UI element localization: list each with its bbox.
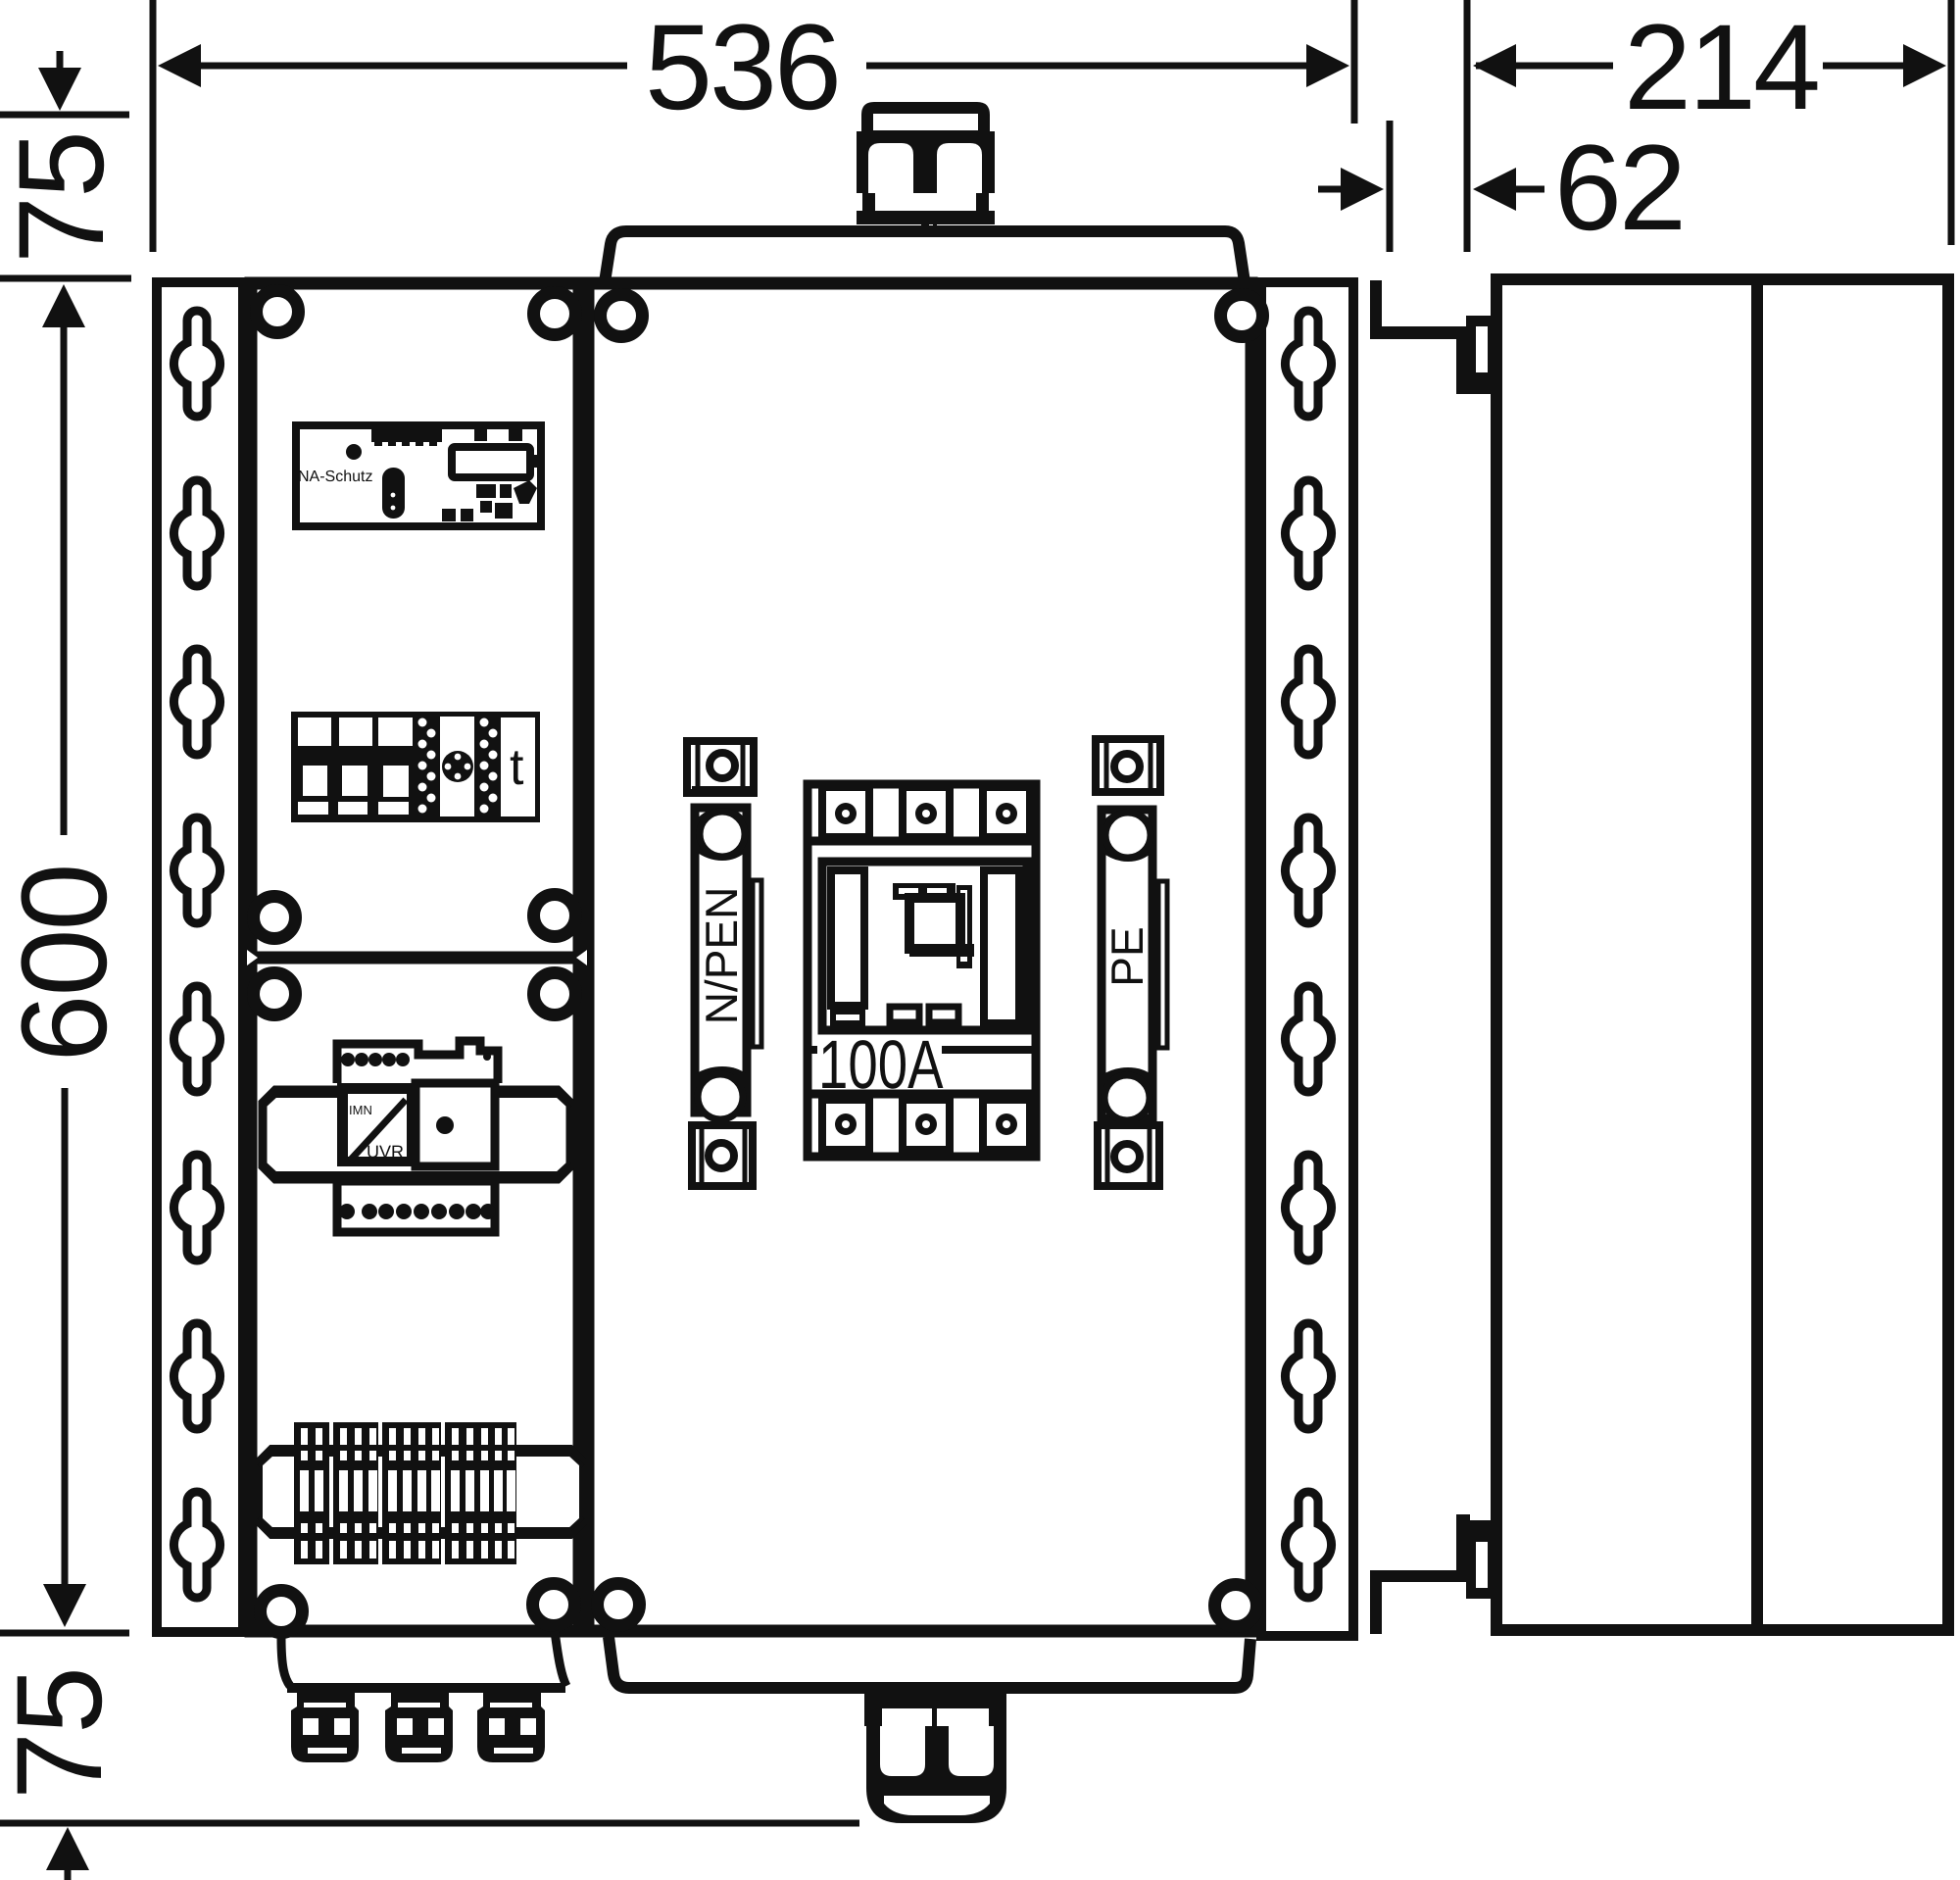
svg-text:IMN: IMN [349, 1103, 372, 1117]
svg-text:600: 600 [0, 866, 132, 1063]
svg-text:62: 62 [1554, 121, 1684, 256]
svg-text:PE: PE [1102, 926, 1152, 986]
svg-text:75: 75 [0, 1668, 127, 1800]
svg-text:100A: 100A [818, 1026, 944, 1103]
svg-text:75: 75 [0, 132, 129, 264]
svg-text:N/PEN: N/PEN [696, 887, 747, 1025]
svg-text:214: 214 [1624, 0, 1818, 135]
svg-text:t: t [510, 739, 524, 796]
svg-text:UVR: UVR [367, 1142, 404, 1162]
svg-text:536: 536 [645, 0, 839, 135]
svg-text:NA-Schutz: NA-Schutz [298, 469, 372, 485]
